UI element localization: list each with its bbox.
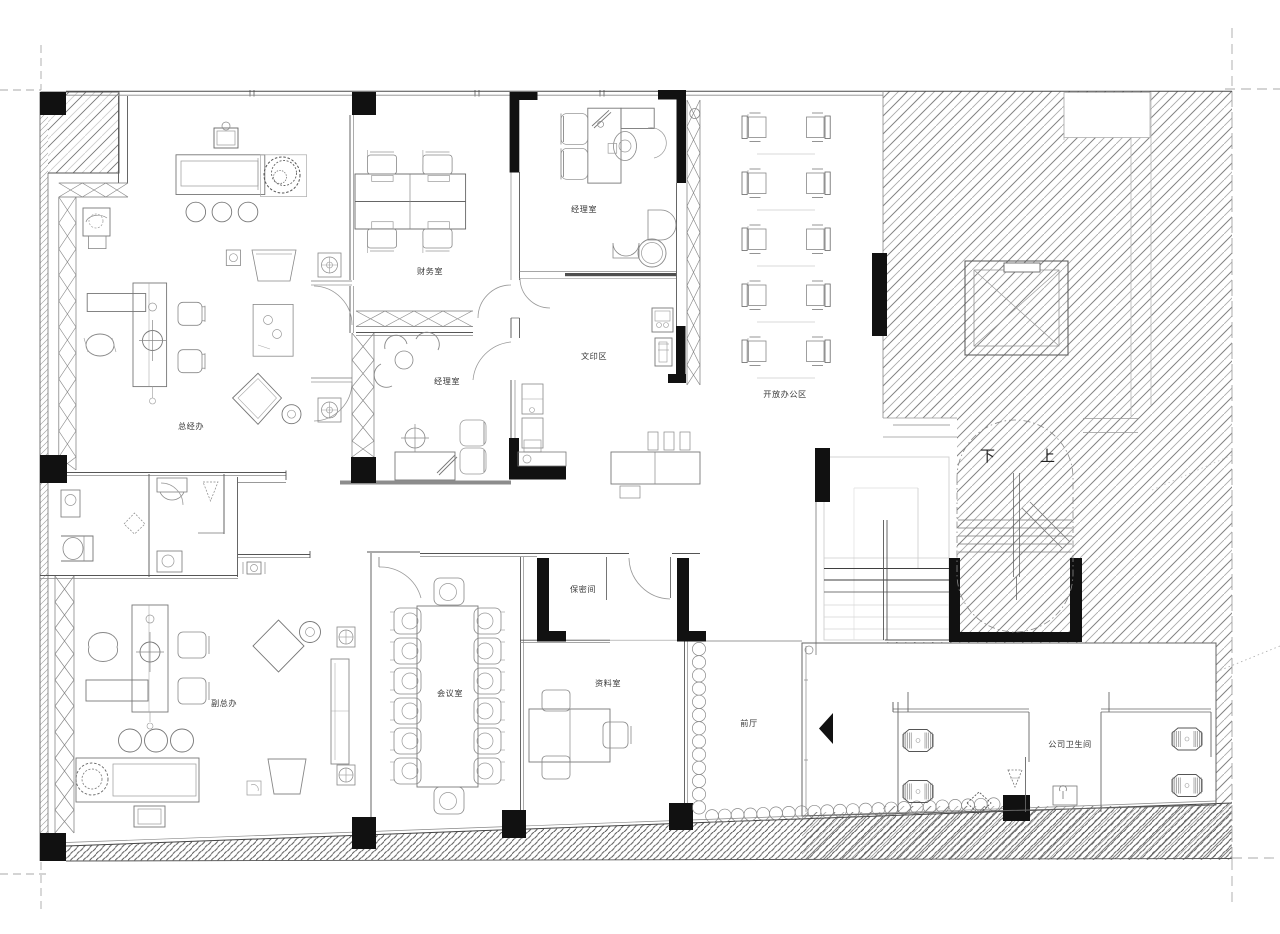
svg-text:资料室: 资料室 [595,678,621,688]
svg-text:副总办: 副总办 [211,698,237,708]
svg-text:会议室: 会议室 [437,688,463,698]
svg-text:下: 下 [980,448,996,465]
svg-text:经理室: 经理室 [571,204,597,214]
svg-text:开放办公区: 开放办公区 [763,389,806,399]
svg-text:前厅: 前厅 [740,718,757,728]
svg-text:保密间: 保密间 [570,584,596,594]
svg-text:上: 上 [1040,448,1056,465]
svg-text:总经办: 总经办 [178,421,204,431]
svg-text:文印区: 文印区 [581,351,607,361]
svg-text:公司卫生间: 公司卫生间 [1048,739,1091,749]
svg-text:经理室: 经理室 [434,376,460,386]
svg-text:财务室: 财务室 [417,266,443,276]
